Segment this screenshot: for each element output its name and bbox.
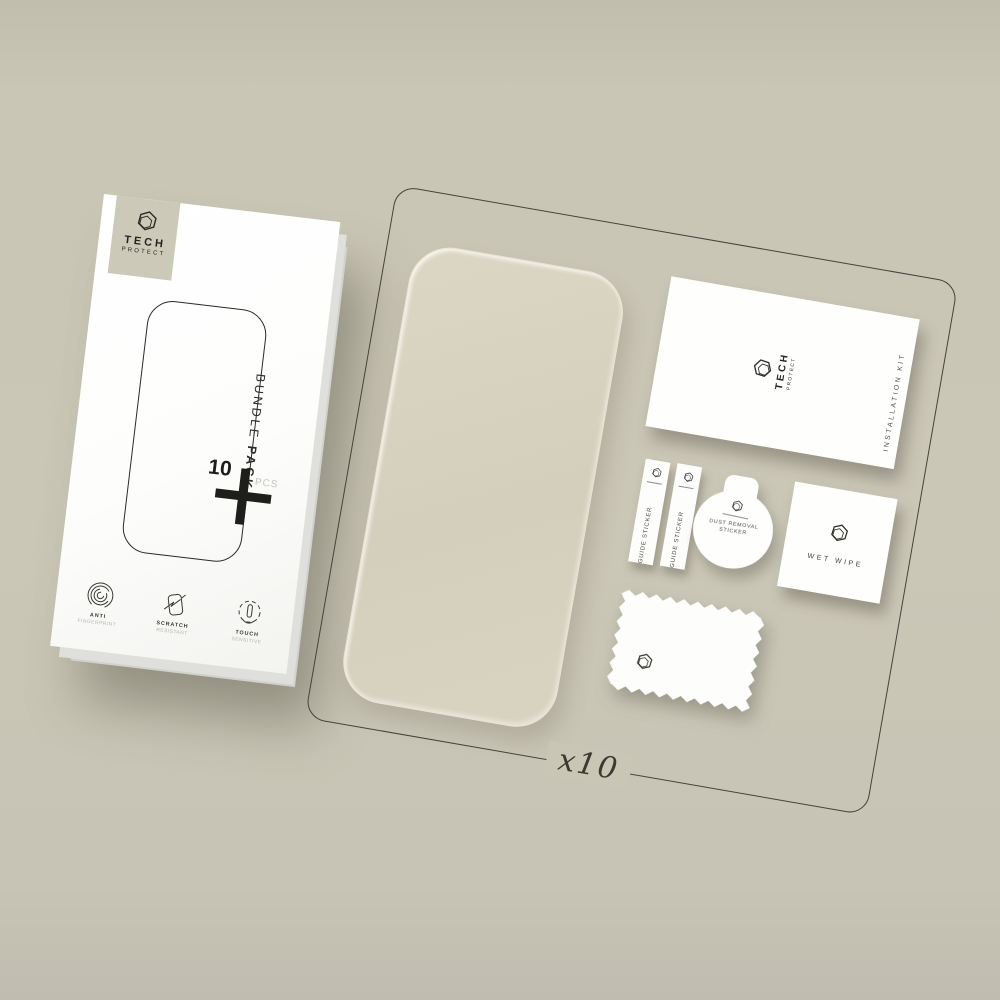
feature-item: TOUCH SENSITIVE: [217, 595, 280, 648]
kit-brand-logo: TECH PROTECT: [746, 339, 819, 407]
microfiber-cloth: [605, 588, 766, 712]
brand-hexagon-icon: [649, 466, 663, 480]
feature-row: ANTI FINGERPRINT SCRATCH RESISTANT TOU: [53, 575, 295, 649]
divider-line: [679, 486, 694, 490]
contents-frame: TECH PROTECT INSTALLATION KIT GUIDE STIC…: [304, 185, 958, 816]
fingerprint-icon: [84, 579, 117, 612]
tempered-glass-protector: [337, 241, 630, 733]
brand-badge: TECH PROTECT: [108, 196, 181, 281]
quantity-number: 10: [207, 455, 233, 482]
feature-item: SCRATCH RESISTANT: [142, 586, 205, 639]
brand-hexagon-icon: [132, 207, 160, 235]
feature-subtitle: FINGERPRINT: [78, 618, 117, 627]
wet-wipe-packet: WET WIPE: [777, 481, 898, 603]
divider-line: [647, 481, 662, 485]
dust-sticker-label: DUST REMOVAL STICKER: [704, 518, 762, 540]
guide-sticker-label: GUIDE STICKER: [637, 485, 656, 564]
brand-hexagon-icon: [826, 520, 851, 545]
wet-wipe-label: WET WIPE: [805, 552, 863, 569]
quantity-unit: PCS: [254, 477, 279, 491]
product-box: TECH PROTECT BUNDLE PACK 10 PCS ANTI FIN…: [50, 194, 340, 674]
brand-hexagon-icon: [749, 356, 776, 383]
feature-title: ANTI: [90, 613, 107, 620]
divider-line: [722, 513, 748, 519]
guide-sticker-label: GUIDE STICKER: [669, 489, 688, 568]
dust-removal-sticker: DUST REMOVAL STICKER: [687, 470, 784, 577]
installation-kit-envelope: TECH PROTECT INSTALLATION KIT: [645, 276, 919, 469]
count-label: x10: [544, 740, 634, 789]
brand-hexagon-icon: [681, 470, 695, 484]
cloth-zigzag-shape: [605, 588, 766, 712]
scratch-resistant-icon: [158, 588, 191, 621]
sticker-body: DUST REMOVAL STICKER: [687, 484, 779, 575]
touch-sensitive-icon: [233, 596, 266, 629]
feature-item: ANTI FINGERPRINT: [68, 577, 131, 630]
brand-hexagon-icon: [729, 498, 745, 514]
installation-kit-label: INSTALLATION KIT: [883, 333, 910, 452]
product-photo-scene: TECH PROTECT BUNDLE PACK 10 PCS ANTI FIN…: [0, 0, 1000, 1000]
brand-hexagon-icon: [633, 650, 656, 673]
